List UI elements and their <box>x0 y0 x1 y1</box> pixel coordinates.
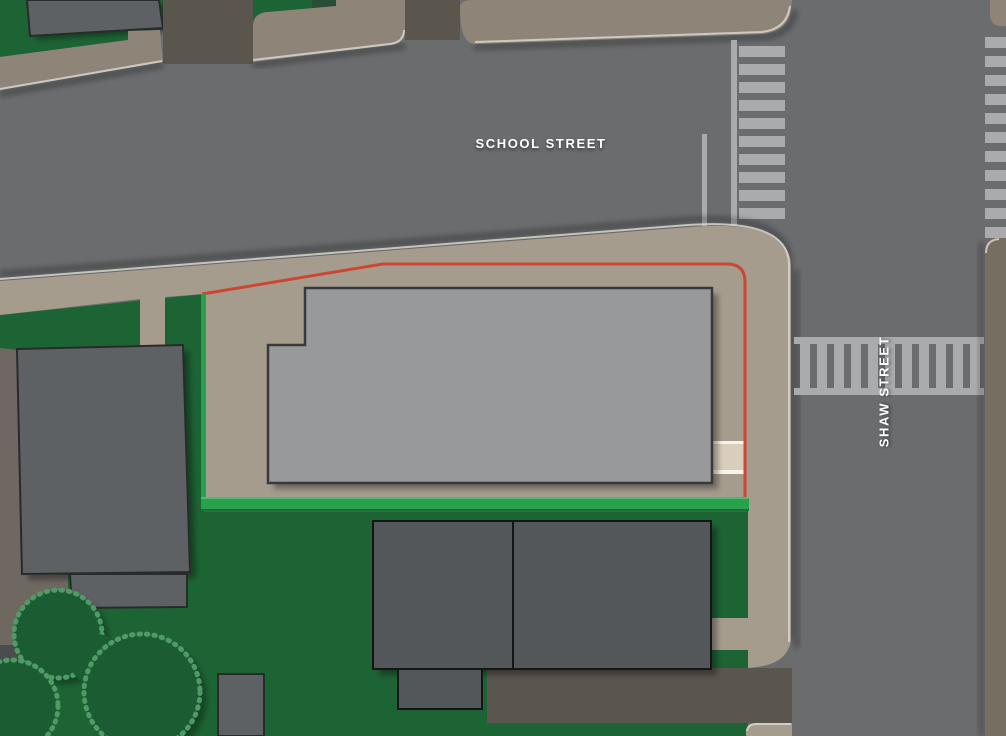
shaw-curb-shadow <box>793 270 800 648</box>
south-building-annex <box>398 669 482 709</box>
west-building <box>17 345 190 574</box>
south-building-east <box>513 521 711 669</box>
parcel-boundary-green-south <box>201 497 749 511</box>
main-building <box>268 288 712 483</box>
school-street-label: SCHOOL STREET <box>436 137 646 150</box>
south-building-west <box>373 521 513 669</box>
parcel-boundary-green-west <box>201 294 206 511</box>
driveway-north-1 <box>163 0 253 64</box>
stop-line-school-street <box>702 134 707 226</box>
crosswalk-school-rail <box>731 40 737 226</box>
sidewalk-north-east-corner <box>990 0 1006 26</box>
driveway-south-east <box>487 668 792 723</box>
south-west-building <box>218 674 264 736</box>
shaw-street-label: SHAW STREET <box>878 332 891 452</box>
curb-east <box>985 238 1006 736</box>
site-plan-map: SCHOOL STREET SHAW STREET <box>0 0 1006 736</box>
crosswalk-east <box>985 37 1006 238</box>
crosswalk-school-street <box>739 46 785 222</box>
east-curb-shadow <box>978 242 985 736</box>
map-canvas <box>0 0 1006 736</box>
driveway-north-2 <box>405 0 460 40</box>
